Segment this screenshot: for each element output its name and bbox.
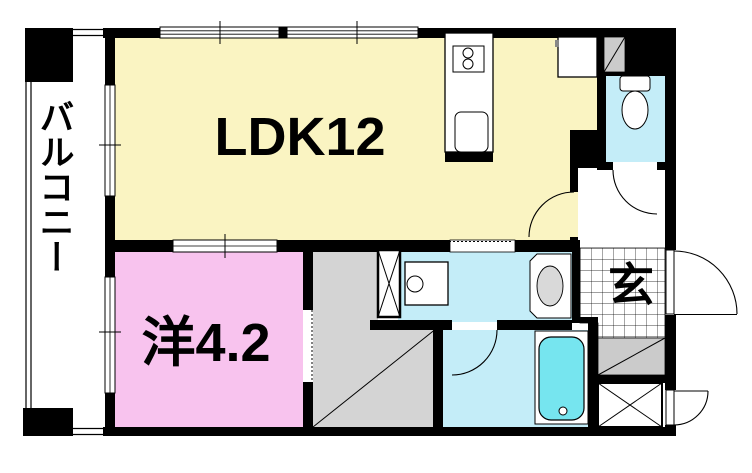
trunk-room-x-box: [598, 383, 662, 427]
wall-counter-end: [445, 152, 493, 162]
storage-x-box: [378, 250, 400, 317]
fridge-handle: [555, 40, 559, 47]
entrance-door: [666, 250, 737, 315]
label-entrance: 玄: [608, 259, 654, 311]
vanity-bowl: [537, 266, 563, 306]
balcony-area: バルコニー: [23, 28, 105, 436]
wall-washroom-bottom-right: [497, 320, 572, 330]
label-western-room: 洋4.2: [141, 313, 270, 373]
wall-hall-upper: [570, 168, 578, 192]
vanity-sink: [530, 254, 571, 318]
wall-western-right-2: [303, 382, 313, 428]
kitchen: [445, 33, 493, 152]
wall-left-3: [105, 393, 115, 427]
bathtub: [535, 331, 588, 424]
toilet-tank: [620, 76, 650, 91]
pillar-top-left: [25, 28, 73, 82]
wall-toilet-bottom-right: [657, 162, 666, 170]
wall-bath-left: [433, 320, 443, 427]
refrigerator-space: [555, 37, 597, 77]
wall-corner-top-right: [625, 28, 676, 75]
floor-plan-svg: バルコニー: [0, 0, 752, 473]
pillar-bottom-left: [23, 408, 73, 436]
label-balcony: バルコニー: [35, 99, 74, 274]
wall-western-right-1: [303, 252, 313, 310]
door-arc-toilet: [613, 170, 657, 214]
wall-left-2: [105, 196, 115, 277]
door-arc-trunk: [674, 391, 708, 425]
wall-left-1: [105, 38, 115, 85]
floor-plan-page: バルコニー: [0, 0, 752, 473]
wall-hall-lower: [570, 237, 578, 242]
burner-icon: [463, 59, 473, 69]
wall-genkan-step: [577, 317, 598, 323]
pipe-space: [604, 37, 625, 72]
washing-machine-pan: [405, 262, 448, 305]
door-arc-entrance: [674, 251, 737, 314]
bathtub-drain-icon: [559, 407, 567, 415]
wall-toilet-bottom-left: [597, 162, 613, 170]
burner-icon: [463, 48, 473, 58]
wall-genkan-left: [572, 242, 580, 323]
wall-shoebox-bottom: [595, 375, 673, 383]
wall-bottom: [103, 427, 676, 436]
trunk-room-door: [666, 390, 708, 425]
drain-icon: [407, 276, 423, 292]
toilet-fixture: [620, 76, 650, 129]
shoe-cabinet: [598, 338, 665, 375]
toilet-bowl: [622, 91, 648, 129]
kitchen-sink: [455, 112, 488, 152]
label-ldk: LDK12: [214, 107, 385, 167]
